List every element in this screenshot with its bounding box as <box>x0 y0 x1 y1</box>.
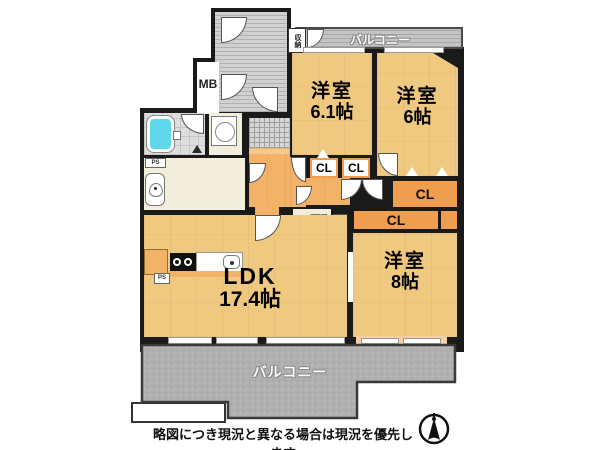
room-size: 6.1帖 <box>292 103 372 122</box>
pipe-space: PS <box>145 158 166 168</box>
bifold-door-mark <box>317 149 329 158</box>
ldk-label: LDK 17.4帖 <box>160 264 340 312</box>
room-size: 8帖 <box>353 273 457 292</box>
bedroom-6-1-label: 洋室 6.1帖 <box>292 82 372 122</box>
bedroom-6-label: 洋室 6帖 <box>377 87 458 127</box>
closet: CL <box>393 181 457 207</box>
closet-label: CL <box>312 160 336 176</box>
disclaimer-text: 略図につき現況と異なる場合は現況を優先します <box>153 424 413 450</box>
washing-machine-drum <box>215 122 235 142</box>
room-size: 17.4帖 <box>160 289 340 312</box>
closet: CL <box>342 158 370 178</box>
drain-mark <box>192 145 202 153</box>
pipe-space-label: PS <box>151 160 159 166</box>
washbasin-faucet <box>154 187 157 190</box>
closet-label: CL <box>344 160 368 176</box>
room-name: 洋室 <box>353 252 457 273</box>
washbasin-bowl <box>149 183 163 197</box>
meter-box-label: MB <box>199 77 218 91</box>
closet: CL <box>354 211 438 229</box>
closet-label: CL <box>354 211 438 229</box>
genkan-step <box>249 149 289 154</box>
bifold-door-mark <box>406 167 418 176</box>
room-name: 洋室 <box>377 87 458 108</box>
balcony-top-label: バルコニー <box>320 31 440 48</box>
bathtub <box>147 116 174 152</box>
bathtub-handle <box>173 131 181 140</box>
room-size: 6帖 <box>377 108 458 127</box>
entrance-genkan <box>249 118 289 148</box>
window <box>384 47 444 53</box>
closet-stub <box>441 211 457 229</box>
meter-box: MB <box>197 62 219 114</box>
ldk-door-gap <box>255 207 279 215</box>
closet: CL <box>310 158 338 178</box>
balcony-bottom <box>140 343 460 427</box>
floor-plan: MB バルコニー 収納 洋室 6.1帖 洋室 6帖 CL CL CL CL 洋室 <box>0 0 600 450</box>
room-name: 洋室 <box>292 82 372 103</box>
compass-north-icon <box>416 411 452 447</box>
bedroom-8-label: 洋室 8帖 <box>353 252 457 292</box>
room-name: LDK <box>160 264 340 289</box>
balcony-bottom-label: バルコニー <box>230 362 350 382</box>
window <box>303 47 365 53</box>
closet-label: CL <box>393 181 457 207</box>
bifold-door-mark <box>436 167 448 176</box>
